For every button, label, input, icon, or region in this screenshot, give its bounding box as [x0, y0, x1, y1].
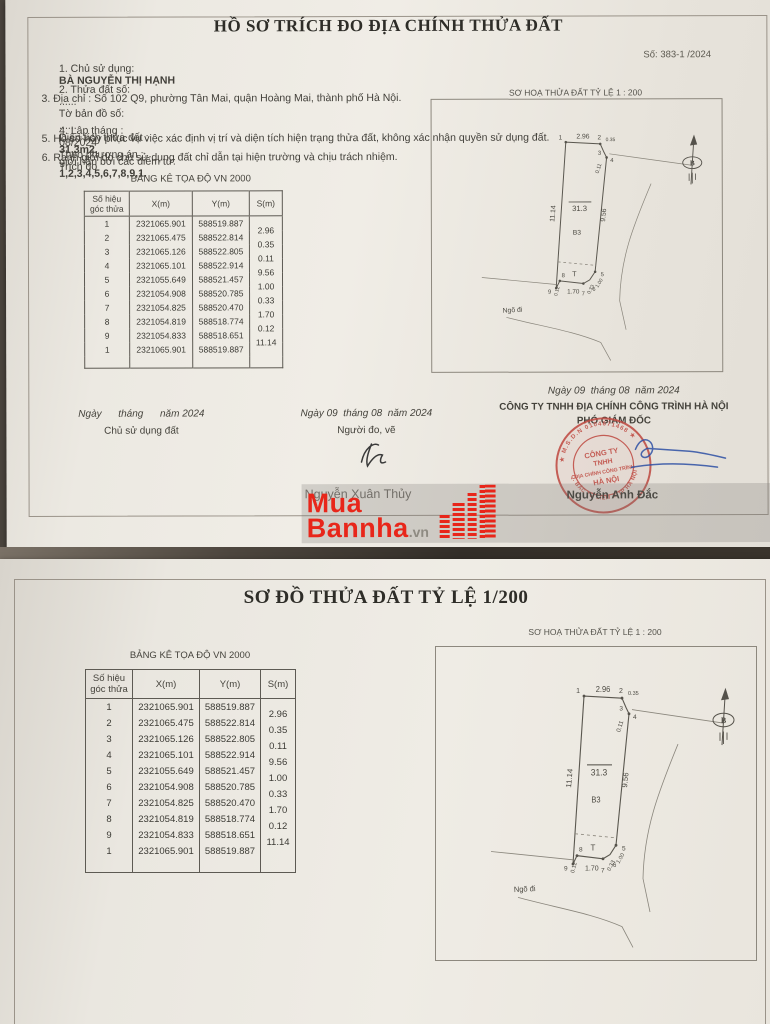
table-header-row: Số hiệu góc thửa X(m) Y(m) S(m) — [84, 191, 282, 217]
field-note-6: 6. Ranh giới do chủ sử dụng đất chỉ dẫn … — [42, 151, 398, 164]
cell-y: 588522.914 — [192, 258, 249, 272]
surveyor-signature — [351, 436, 403, 474]
block-label: B3 — [573, 230, 582, 237]
north-arrow-icon: B — [683, 135, 702, 185]
cell-id: 2 — [86, 715, 133, 731]
cell-s-column: 2.96 0.35 0.11 9.56 1.00 0.33 1.70 0.12 … — [261, 699, 296, 873]
cell-x: 2321065.101 — [133, 747, 200, 763]
col-header-x: X(m) — [133, 670, 200, 699]
vertex-3: 3 — [598, 151, 602, 157]
cell-x: 2321065.901 — [130, 343, 193, 357]
cell-y: 588518.774 — [200, 811, 261, 827]
s-value: 0.35 — [250, 237, 282, 251]
dim-8-9: 0.12 — [553, 286, 561, 297]
dim-7-8: 1.70 — [585, 864, 599, 872]
plot-diagram-1: 1 2.96 2 0.35 3 4 0.11 9.56 11.14 31.3 B… — [431, 98, 724, 373]
cell-empty — [85, 357, 130, 369]
watermark-logo: Mua Bannha.vn — [307, 485, 496, 541]
cell-id: 4 — [84, 259, 129, 273]
vertex-4: 4 — [633, 714, 637, 721]
cell-empty — [130, 357, 193, 369]
cell-empty — [86, 859, 133, 873]
scanned-document-photo: HỒ SƠ TRÍCH ĐO ĐỊA CHÍNH THỬA ĐẤT 1. Chủ… — [0, 0, 770, 1024]
coord-table-2: Số hiệu góc thửa X(m) Y(m) S(m) 1 232106… — [85, 669, 296, 873]
vertex-7: 7 — [582, 291, 585, 297]
cell-id: 3 — [86, 731, 133, 747]
cell-x: 2321054.819 — [130, 315, 193, 329]
vertex-1: 1 — [559, 134, 563, 141]
dim-4-5: 9.56 — [600, 208, 608, 222]
cell-x: 2321065.126 — [129, 245, 192, 259]
col-header-x: X(m) — [129, 191, 192, 216]
cell-x: 2321055.649 — [129, 273, 192, 287]
cell-x: 2321065.126 — [133, 731, 200, 747]
dim-3-4: 0.11 — [615, 719, 625, 733]
cell-x: 2321065.101 — [129, 259, 192, 273]
cell-id: 1 — [84, 216, 129, 231]
cell-y: 588520.470 — [200, 795, 261, 811]
cell-y: 588521.457 — [200, 763, 261, 779]
page-2-sheet: SƠ ĐỒ THỬA ĐẤT TỶ LỆ 1/200 SƠ HOẠ THỬA Đ… — [0, 559, 770, 1024]
col-header-y: Y(m) — [200, 670, 261, 699]
table-row: 1 2321065.901 588519.887 2.96 0.35 0.11 … — [84, 216, 282, 231]
s-value: 0.12 — [250, 321, 282, 335]
block-label: B3 — [591, 795, 600, 804]
vertex-6: 6 — [613, 862, 617, 869]
col-header-y: Y(m) — [192, 191, 249, 216]
cell-id: 8 — [86, 811, 133, 827]
area-label: 31.3 — [572, 204, 587, 213]
cell-id: 6 — [85, 287, 130, 301]
dim-2-3: 0.35 — [606, 137, 616, 143]
watermark-word-2: Bannha — [307, 513, 409, 543]
s-value: 1.00 — [250, 279, 282, 293]
cell-x: 2321055.649 — [133, 763, 200, 779]
cell-x: 2321065.475 — [133, 715, 200, 731]
cell-x: 2321054.833 — [133, 827, 200, 843]
s-value: 2.96 — [261, 707, 295, 723]
s-value: 0.33 — [250, 293, 282, 307]
s-value: 1.00 — [261, 771, 295, 787]
cell-id: 6 — [86, 779, 133, 795]
cell-id: 5 — [84, 273, 129, 287]
cell-id: 4 — [86, 747, 133, 763]
cell-y: 588522.805 — [200, 731, 261, 747]
cell-y: 588522.805 — [192, 244, 249, 258]
cell-y: 588522.814 — [200, 715, 261, 731]
cell-id: 2 — [84, 231, 129, 245]
col-header-s: S(m) — [261, 670, 296, 699]
sign-left-role: Chủ sử dụng đất — [51, 425, 231, 436]
vertex-2: 2 — [597, 134, 601, 141]
col-header-id: Số hiệu góc thửa — [84, 191, 129, 216]
section-label: T — [591, 843, 596, 852]
plot-diagram-2: 1 2.96 2 0.35 3 4 0.11 9.56 11.14 31.3 B… — [435, 646, 757, 961]
dim-9-1: 11.14 — [549, 205, 557, 222]
s-value: 0.11 — [250, 251, 282, 265]
sign-mid-date: Ngày 09 tháng 08 năm 2024 — [278, 408, 454, 419]
watermark-suffix: .vn — [409, 524, 429, 540]
area-label: 31.3 — [591, 767, 608, 777]
s-value: 1.70 — [261, 803, 295, 819]
s-value: 11.14 — [250, 335, 282, 349]
cell-y: 588520.785 — [193, 286, 250, 300]
dim-3-4: 0.11 — [595, 163, 604, 175]
diagram-1-caption: SƠ HOẠ THỬA ĐẤT TỶ LỆ 1 : 200 — [431, 87, 721, 98]
alley-label: Ngõ đi — [503, 307, 523, 315]
cell-empty — [200, 859, 261, 873]
cell-id: 3 — [84, 245, 129, 259]
s-value: 0.11 — [261, 739, 295, 755]
cell-y: 588520.470 — [193, 300, 250, 314]
cell-y: 588518.651 — [200, 827, 261, 843]
cell-id: 7 — [86, 795, 133, 811]
north-letter: B — [721, 716, 727, 725]
cell-x: 2321065.901 — [133, 699, 200, 716]
page-1-sheet: HỒ SƠ TRÍCH ĐO ĐỊA CHÍNH THỬA ĐẤT 1. Chủ… — [5, 0, 770, 550]
cell-x: 2321054.908 — [133, 779, 200, 795]
cell-id: 1 — [85, 343, 130, 357]
cell-y: 588519.887 — [192, 216, 249, 231]
cell-empty — [193, 356, 250, 368]
cell-y: 588518.774 — [193, 314, 250, 328]
vertex-8: 8 — [562, 273, 566, 279]
dim-7-8: 1.70 — [567, 289, 580, 296]
diagram-2-caption: SƠ HOẠ THỬA ĐẤT TỶ LỆ 1 : 200 — [435, 627, 755, 637]
cell-id: 9 — [86, 827, 133, 843]
vertex-4: 4 — [610, 158, 614, 164]
cell-x: 2321054.819 — [133, 811, 200, 827]
dim-1-2: 2.96 — [596, 685, 611, 694]
dim-1-2: 2.96 — [576, 133, 589, 140]
vertex-5: 5 — [622, 845, 626, 852]
table-header-row: Số hiệu góc thửa X(m) Y(m) S(m) — [86, 670, 296, 699]
cell-y: 588519.887 — [200, 699, 261, 716]
cell-x: 2321054.908 — [130, 287, 193, 301]
cell-y: 588521.457 — [192, 272, 249, 286]
dim-5-6: 1.00 — [616, 852, 627, 865]
vertex-5: 5 — [601, 272, 605, 278]
cell-s-column: 2.96 0.35 0.11 9.56 1.00 0.33 1.70 0.12 … — [249, 216, 282, 368]
s-value: 1.70 — [250, 307, 282, 321]
cell-id: 1 — [86, 699, 133, 716]
alley-label: Ngõ đi — [514, 884, 536, 894]
cell-id: 1 — [86, 843, 133, 859]
s-value: 9.56 — [261, 755, 295, 771]
page-2-title: SƠ ĐỒ THỬA ĐẤT TỶ LỆ 1/200 — [0, 587, 770, 609]
cell-y: 588522.914 — [200, 747, 261, 763]
cell-x: 2321054.825 — [130, 301, 193, 315]
vertex-9: 9 — [548, 290, 551, 296]
s-value: 0.35 — [261, 723, 295, 739]
cell-y: 588522.814 — [192, 230, 249, 244]
cell-x: 2321054.833 — [130, 329, 193, 343]
dim-2-3: 0.35 — [628, 691, 639, 697]
dim-9-1: 11.14 — [564, 768, 574, 788]
coord-table-1: Số hiệu góc thửa X(m) Y(m) S(m) 1 232106… — [84, 190, 283, 369]
sign-right-date: Ngày 09 tháng 08 năm 2024 — [486, 385, 741, 397]
buildings-icon — [437, 485, 496, 539]
cell-id: 7 — [85, 301, 130, 315]
sign-mid-role: Người đo, vẽ — [278, 425, 454, 436]
north-letter: B — [690, 159, 695, 167]
col-header-s: S(m) — [249, 191, 282, 216]
cell-x: 2321065.901 — [129, 216, 192, 231]
table-row: 1 2321065.901 588519.887 2.96 0.35 0.11 … — [86, 699, 296, 716]
section-label: T — [572, 269, 577, 278]
cell-y: 588518.651 — [193, 328, 250, 342]
vertex-8: 8 — [579, 846, 583, 853]
cell-id: 9 — [85, 329, 130, 343]
cell-x: 2321065.901 — [133, 843, 200, 859]
sign-left-date: Ngày tháng năm 2024 — [51, 408, 231, 419]
page-1-title: HỒ SƠ TRÍCH ĐO ĐỊA CHÍNH THỬA ĐẤT — [5, 15, 770, 37]
s-value: 11.14 — [261, 835, 295, 851]
vertex-1: 1 — [576, 687, 580, 695]
cell-empty — [133, 859, 200, 873]
cell-y: 588519.887 — [200, 843, 261, 859]
coord-table-1-title: BẢNG KÊ TỌA ĐỘ VN 2000 — [96, 173, 286, 184]
s-value: 9.56 — [250, 265, 282, 279]
cell-x: 2321054.825 — [133, 795, 200, 811]
col-header-id: Số hiệu góc thửa — [86, 670, 133, 699]
dim-4-5: 9.56 — [620, 772, 630, 788]
s-value: 2.96 — [250, 223, 282, 237]
vertex-6: 6 — [592, 287, 595, 293]
cell-y: 588519.887 — [193, 342, 250, 356]
s-value: 0.33 — [261, 787, 295, 803]
doc-number: Số: 383-1 /2024 — [643, 49, 711, 60]
dim-8-9: 0.12 — [570, 862, 578, 874]
s-value: 0.12 — [261, 819, 295, 835]
vertex-2: 2 — [619, 687, 623, 695]
vertex-3: 3 — [619, 706, 623, 713]
vertex-7: 7 — [601, 867, 605, 874]
cell-id: 8 — [85, 315, 130, 329]
coord-table-2-title: BẢNG KÊ TỌA ĐỘ VN 2000 — [90, 650, 290, 661]
vertex-9: 9 — [564, 865, 568, 872]
cell-x: 2321065.475 — [129, 231, 192, 245]
cell-y: 588520.785 — [200, 779, 261, 795]
north-arrow-icon: B — [713, 688, 734, 745]
dim-5-6: 1.00 — [594, 278, 604, 290]
field-address: 3. Địa chỉ : Số 102 Q9, phường Tân Mai, … — [42, 92, 402, 105]
cell-id: 5 — [86, 763, 133, 779]
